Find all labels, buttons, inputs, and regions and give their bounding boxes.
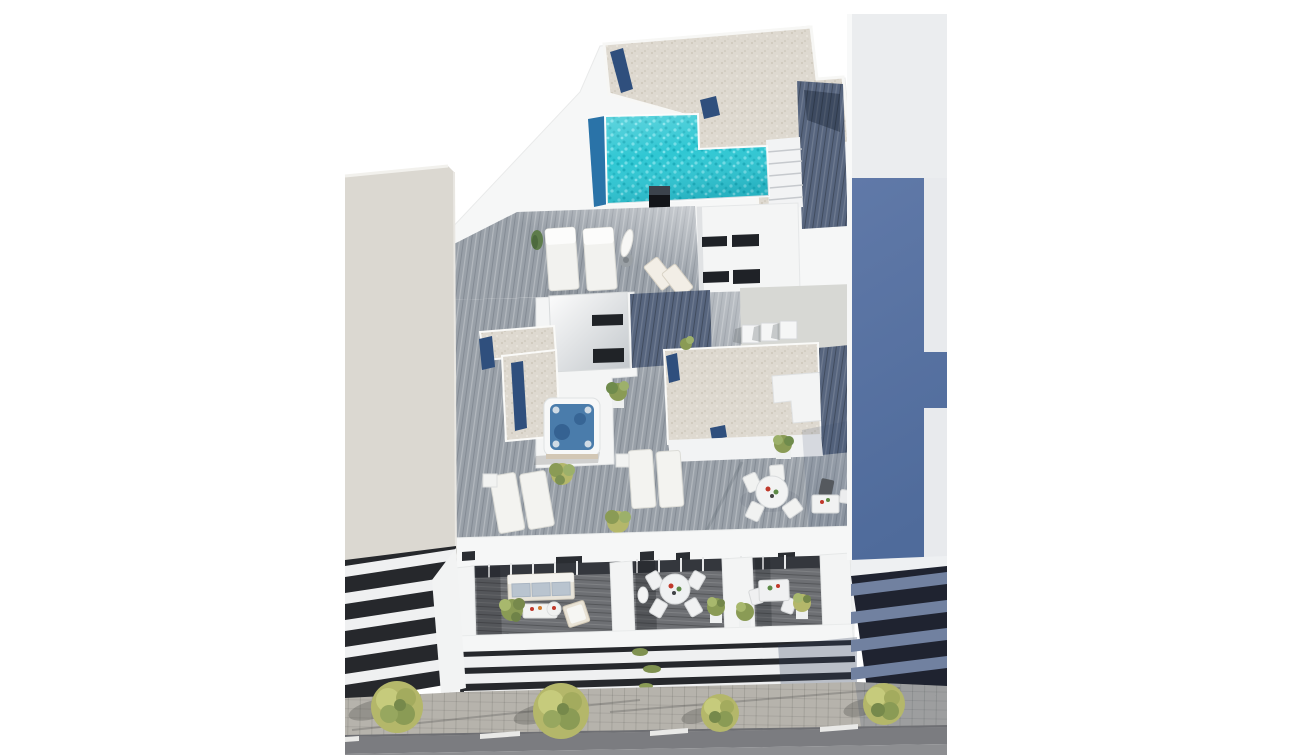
lounger-cushion bbox=[628, 449, 656, 509]
street-tree bbox=[371, 681, 423, 733]
main-building bbox=[448, 26, 857, 707]
plant-foliage bbox=[793, 593, 803, 603]
mullion bbox=[680, 558, 682, 574]
round-table bbox=[660, 574, 690, 604]
low-table bbox=[812, 495, 839, 513]
sofa-cushion bbox=[532, 583, 550, 597]
street-tree bbox=[863, 683, 905, 725]
plant-foliage bbox=[803, 595, 811, 603]
vent-window bbox=[733, 269, 760, 284]
plant-foliage bbox=[605, 510, 619, 524]
facade-window bbox=[462, 551, 475, 561]
plant-foliage bbox=[563, 464, 575, 476]
table-item-red bbox=[776, 584, 780, 588]
right-building-edge bbox=[847, 14, 852, 178]
jacuzzi-water-dark bbox=[574, 413, 586, 425]
jacuzzi-seat bbox=[585, 441, 592, 448]
plant-foliage bbox=[784, 436, 794, 446]
sunbed-canopy bbox=[545, 227, 576, 245]
plant-foliage bbox=[549, 463, 563, 477]
plant-foliage bbox=[619, 381, 629, 391]
rooftop-unit bbox=[780, 321, 797, 339]
sun-lounger bbox=[656, 450, 684, 508]
plant-foliage bbox=[619, 511, 631, 523]
architectural-render bbox=[0, 0, 1290, 755]
table-item-green bbox=[677, 587, 682, 592]
left-building-wall bbox=[345, 166, 456, 560]
plant-foliage bbox=[707, 597, 717, 607]
facade-window bbox=[640, 551, 654, 561]
sunbed-canopy bbox=[583, 227, 614, 245]
plant-foliage bbox=[499, 599, 511, 611]
building-gap bbox=[847, 178, 852, 560]
table-item-red bbox=[766, 487, 771, 492]
side-table bbox=[483, 474, 497, 487]
sofa-cushion bbox=[512, 583, 530, 597]
tree-foliage bbox=[557, 703, 569, 715]
table-item-red bbox=[669, 584, 674, 589]
table-item-green bbox=[774, 490, 779, 495]
mullion bbox=[576, 561, 578, 577]
table-item-green bbox=[826, 498, 830, 502]
right-building-light-column bbox=[924, 408, 947, 560]
table-item-red bbox=[552, 606, 556, 610]
wall-shadow bbox=[476, 566, 502, 643]
sun-lounger bbox=[628, 449, 656, 509]
tree-foliage bbox=[709, 711, 721, 723]
shaft-cap bbox=[649, 186, 670, 195]
plant-foliage bbox=[555, 475, 565, 485]
table-top bbox=[759, 579, 790, 601]
stairwell-vent bbox=[592, 314, 623, 326]
rect-table bbox=[759, 579, 790, 601]
street-tree bbox=[533, 683, 589, 739]
mid-terrace bbox=[452, 284, 853, 552]
vent-window bbox=[703, 271, 729, 283]
jacuzzi-water-dark bbox=[554, 424, 570, 440]
table-item-dark bbox=[770, 494, 774, 498]
stairwell-vent bbox=[593, 348, 624, 363]
sofa bbox=[508, 573, 575, 601]
plant-foliage bbox=[513, 598, 525, 610]
plant-foliage bbox=[717, 599, 725, 607]
jacuzzi-seat bbox=[553, 441, 560, 448]
jacuzzi-seat bbox=[585, 407, 592, 414]
plant-foliage bbox=[736, 602, 746, 612]
pool-stairs bbox=[766, 137, 803, 210]
mullion bbox=[784, 555, 786, 571]
table-item-red bbox=[820, 500, 824, 504]
vent-window bbox=[702, 236, 727, 247]
vent-window bbox=[732, 234, 759, 247]
plant-foliage bbox=[773, 435, 783, 445]
render-canvas bbox=[0, 0, 1290, 755]
table-item-red bbox=[530, 607, 534, 611]
parasol-base-center bbox=[623, 257, 629, 263]
street bbox=[345, 681, 947, 755]
street-tree bbox=[701, 694, 739, 732]
jacuzzi-step bbox=[546, 454, 598, 459]
side-table bbox=[616, 454, 629, 467]
plant-foliage bbox=[511, 612, 521, 622]
table-item-green bbox=[768, 586, 773, 591]
balcony-divider bbox=[610, 561, 635, 638]
right-building-light-column bbox=[924, 178, 947, 352]
table-item-orange bbox=[538, 606, 542, 610]
lane-dash bbox=[345, 736, 359, 742]
conical-shrub-shade bbox=[532, 235, 538, 249]
plant-foliage bbox=[686, 336, 694, 344]
potted-plant bbox=[773, 435, 794, 459]
tree-foliage bbox=[871, 703, 885, 717]
table-item-dark bbox=[672, 591, 676, 595]
sofa-cushion bbox=[552, 582, 570, 596]
balcony-level bbox=[452, 526, 855, 659]
white-sculpture bbox=[638, 587, 648, 603]
trailing-plant bbox=[643, 665, 661, 673]
lounger-cushion bbox=[656, 450, 684, 508]
tree-foliage bbox=[394, 699, 406, 711]
trailing-plant bbox=[632, 648, 648, 656]
balcony-wall bbox=[820, 553, 853, 632]
jacuzzi-seat bbox=[553, 407, 560, 414]
right-building-top bbox=[851, 14, 947, 178]
plant-foliage bbox=[606, 382, 618, 394]
right-neighbour-building bbox=[847, 14, 947, 696]
left-neighbour-building bbox=[345, 166, 466, 702]
mullion bbox=[702, 557, 704, 573]
round-table bbox=[756, 476, 788, 508]
